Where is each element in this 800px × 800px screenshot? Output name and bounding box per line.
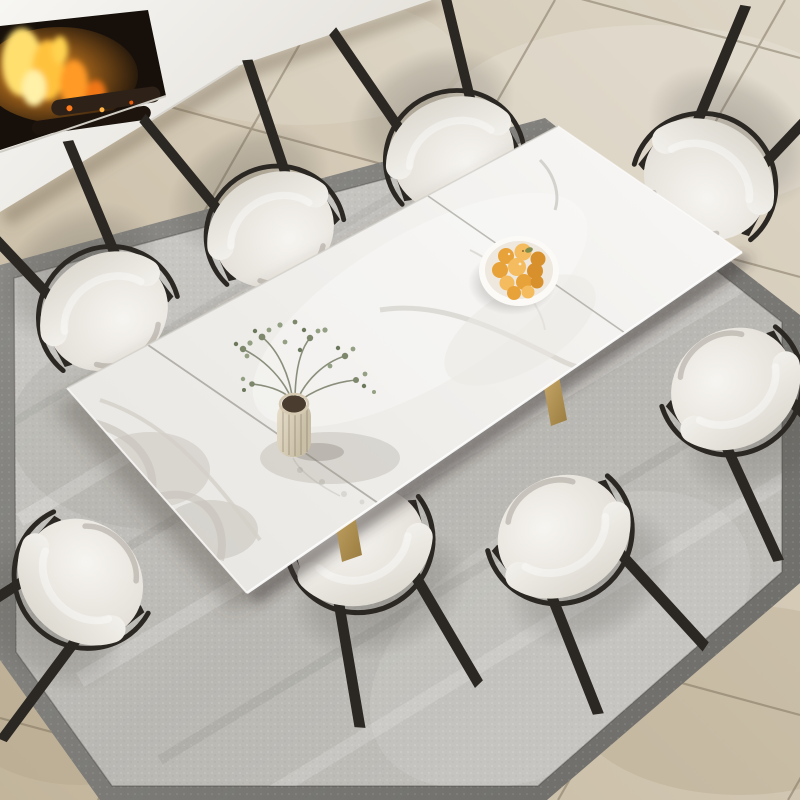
leaf [353,377,359,383]
leaf [241,377,245,381]
leaf [342,353,348,359]
leaf [362,384,366,388]
reflection-leaf [341,491,347,497]
fruit [507,286,521,300]
leaf [249,381,255,387]
leaf [307,335,313,341]
fruit-stem [522,250,524,252]
leaf [245,354,250,359]
leaf [351,347,356,352]
leaf [253,329,257,333]
leaf [363,372,368,377]
leaf [283,340,288,345]
leaf [302,328,306,332]
leaf [293,320,298,325]
fruit [522,286,535,299]
leaf [247,340,252,345]
leaf [242,388,246,392]
fruit-highlight [519,263,522,266]
leaf [240,346,246,352]
reflection-leaf [319,479,325,485]
leaf [336,346,340,350]
fruit [492,262,508,278]
leaf [322,327,327,332]
flame [22,70,46,106]
leaf [316,329,321,334]
vase-mouth [282,396,306,413]
leaf [372,390,376,394]
fruit [531,276,544,289]
leaf [259,334,266,341]
leaf [234,342,238,346]
reflection-leaf [360,500,365,505]
photo-dining-room [0,0,800,800]
fruit [508,258,526,276]
leaf [328,364,333,369]
fruit-highlight [508,253,510,255]
scene-canvas [0,0,800,800]
reflection-leaf [297,467,303,473]
flame [52,36,68,64]
leaf [298,348,302,352]
leaf [277,322,282,327]
leaf [267,328,272,333]
